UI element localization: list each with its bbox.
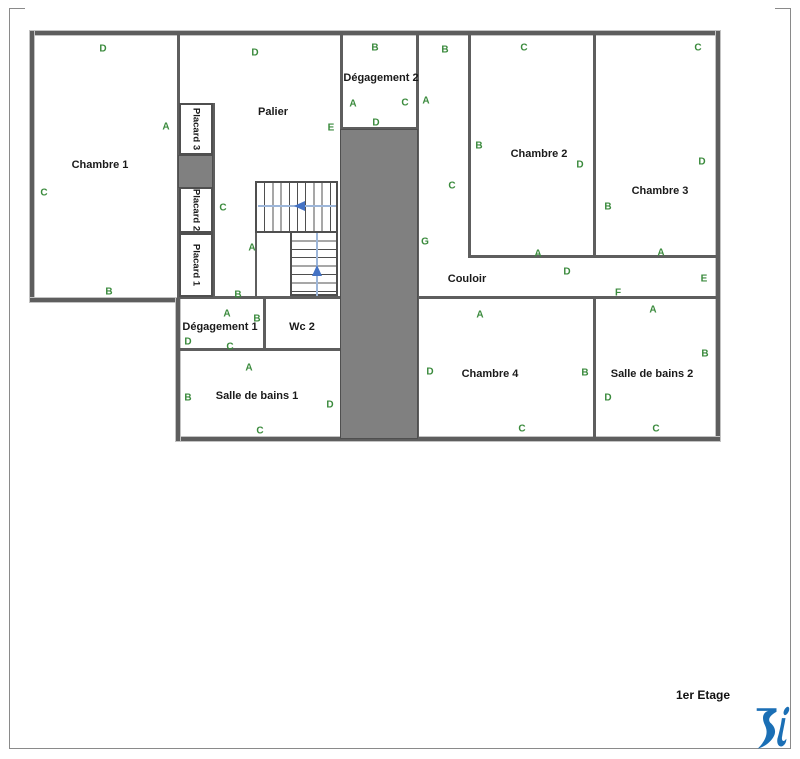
door-label: C — [520, 43, 527, 54]
shaft-gray-area — [340, 129, 418, 439]
floor-title: 1er Etage — [658, 688, 748, 702]
door-label: B — [441, 45, 448, 56]
door-label: A — [534, 249, 541, 260]
door-label: C — [40, 188, 47, 199]
floor-plan: Chambre 1PalierPlacard 3Placard 2Placard… — [0, 0, 800, 759]
door-label: D — [184, 337, 191, 348]
door-label: B — [701, 349, 708, 360]
room-label: Chambre 4 — [462, 368, 519, 380]
door-label: C — [256, 426, 263, 437]
room-label: Dégagement 1 — [182, 321, 257, 333]
door-label: A — [223, 309, 230, 320]
door-label: B — [581, 368, 588, 379]
door-label: A — [422, 96, 429, 107]
door-label: E — [328, 123, 335, 134]
wall — [263, 299, 266, 350]
door-label: C — [401, 98, 408, 109]
door-label: E — [701, 274, 708, 285]
stair-arrow-left-icon — [294, 201, 305, 211]
wall — [30, 31, 720, 35]
wall — [30, 31, 34, 302]
door-label: A — [245, 363, 252, 374]
door-label: D — [563, 267, 570, 278]
wall — [416, 296, 718, 299]
room-label: Wc 2 — [289, 321, 315, 333]
door-label: C — [448, 181, 455, 192]
door-label: A — [476, 310, 483, 321]
door-label: B — [184, 393, 191, 404]
door-label: F — [615, 288, 621, 299]
door-label: B — [253, 314, 260, 325]
wall — [593, 33, 596, 257]
wall — [176, 437, 720, 441]
gray-block — [178, 155, 213, 188]
door-label: A — [162, 122, 169, 133]
room-label: Salle de bains 2 — [611, 368, 694, 380]
door-label: B — [105, 287, 112, 298]
wall — [176, 298, 180, 441]
door-label: G — [421, 237, 429, 248]
door-label: D — [576, 160, 583, 171]
door-label: C — [694, 43, 701, 54]
door-label: D — [698, 157, 705, 168]
room-label: Salle de bains 1 — [216, 390, 299, 402]
blue-ri-logo-icon — [754, 704, 790, 752]
wall — [593, 299, 596, 439]
wall — [177, 348, 343, 351]
door-label: A — [649, 305, 656, 316]
door-label: D — [604, 393, 611, 404]
room-label: Chambre 2 — [511, 148, 568, 160]
door-label: B — [475, 141, 482, 152]
wall — [468, 33, 471, 257]
door-label: C — [226, 342, 233, 353]
room-label: Placard 1 — [191, 244, 202, 286]
room-label: Dégagement 2 — [343, 72, 418, 84]
room-label: Chambre 3 — [632, 185, 689, 197]
door-label: D — [326, 400, 333, 411]
door-label: D — [426, 367, 433, 378]
wall — [30, 298, 180, 302]
door-label: B — [604, 202, 611, 213]
door-label: D — [372, 118, 379, 129]
room-label: Placard 3 — [191, 108, 202, 150]
door-label: B — [371, 43, 378, 54]
door-label: C — [652, 424, 659, 435]
door-label: A — [248, 243, 255, 254]
door-label: C — [219, 203, 226, 214]
stair-arrow-up-icon — [312, 265, 322, 276]
door-label: A — [349, 99, 356, 110]
wall — [716, 31, 720, 441]
wall — [468, 255, 718, 258]
room-label: Chambre 1 — [72, 159, 129, 171]
room-label: Placard 2 — [191, 189, 202, 231]
door-label: A — [657, 248, 664, 259]
door-label: D — [99, 44, 106, 55]
door-label: C — [518, 424, 525, 435]
room-label: Palier — [258, 106, 288, 118]
room-label: Couloir — [448, 273, 487, 285]
door-label: D — [251, 48, 258, 59]
door-label: B — [234, 290, 241, 301]
